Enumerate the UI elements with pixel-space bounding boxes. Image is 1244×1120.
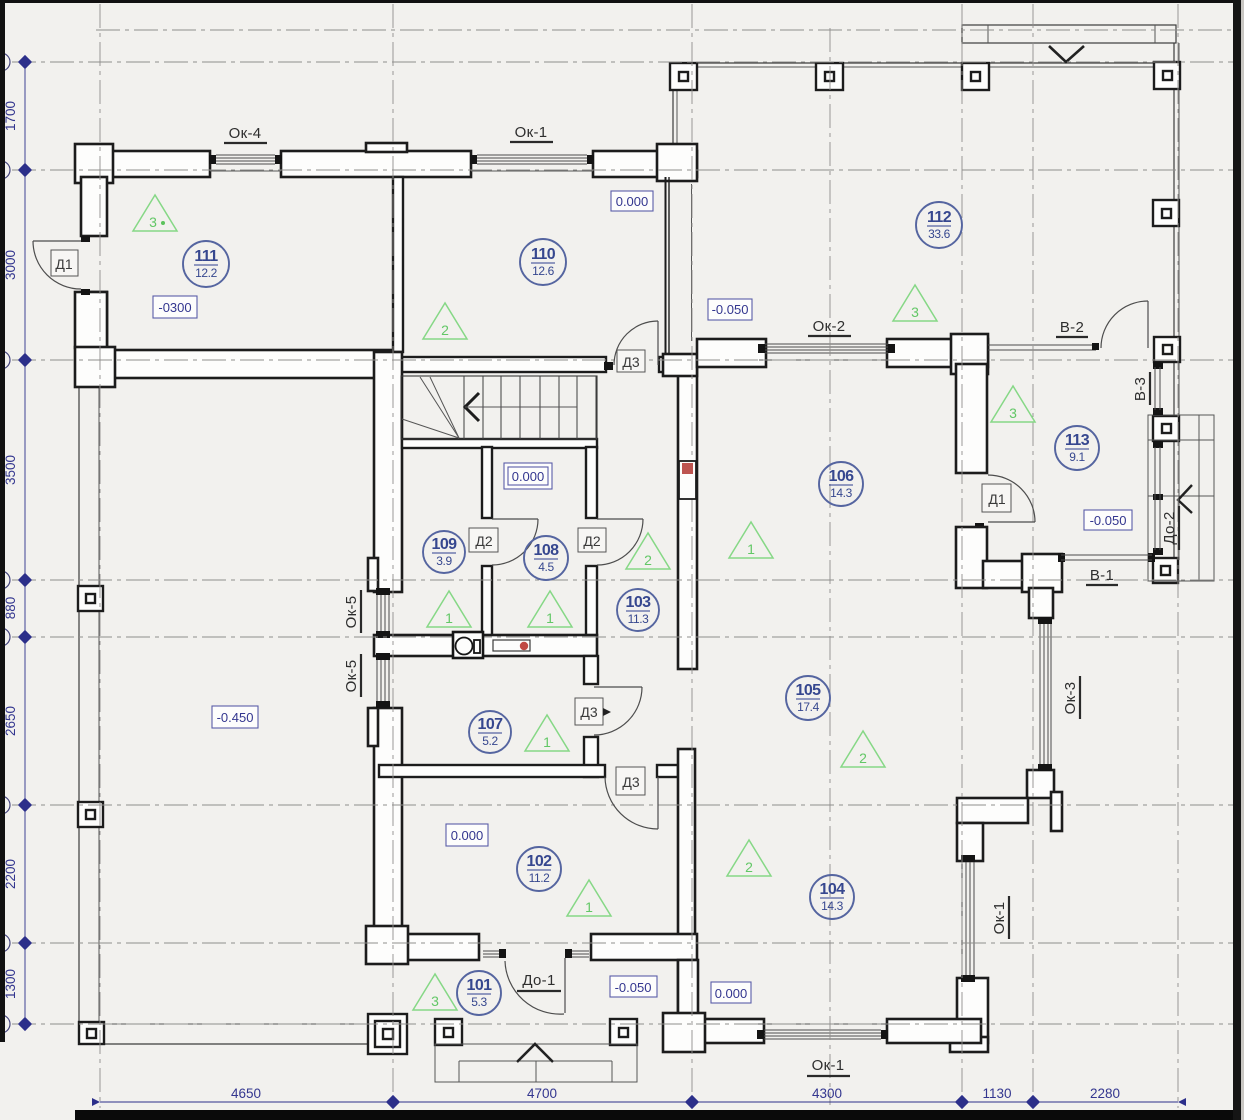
svg-text:4650: 4650 [231,1086,261,1101]
svg-text:До-1: До-1 [522,972,555,989]
svg-text:До-2: До-2 [1161,511,1178,544]
svg-text:109: 109 [432,536,458,553]
svg-text:Д3: Д3 [580,704,597,720]
svg-text:9.1: 9.1 [1069,450,1085,464]
svg-text:Ок-3: Ок-3 [1062,682,1079,715]
svg-text:2650: 2650 [3,706,18,736]
svg-text:33.6: 33.6 [928,227,950,241]
svg-text:103: 103 [626,594,652,611]
svg-text:880: 880 [3,597,18,620]
svg-text:5.3: 5.3 [471,995,487,1009]
svg-text:3: 3 [149,214,157,230]
svg-text:Д3: Д3 [622,774,639,790]
svg-text:Ок-5: Ок-5 [343,596,360,629]
svg-text:4300: 4300 [812,1086,842,1101]
svg-text:2: 2 [441,322,449,338]
svg-text:112: 112 [927,209,952,226]
svg-text:1700: 1700 [3,101,18,131]
svg-text:1300: 1300 [3,969,18,999]
svg-text:3500: 3500 [3,455,18,485]
svg-text:3: 3 [1009,405,1017,421]
svg-text:-0300: -0300 [158,300,191,315]
svg-text:0.000: 0.000 [715,986,748,1001]
svg-text:В-1: В-1 [1090,567,1114,584]
svg-text:-0.050: -0.050 [1090,513,1127,528]
svg-text:102: 102 [527,853,553,870]
svg-text:107: 107 [478,716,504,733]
svg-text:Ок-2: Ок-2 [813,318,846,335]
svg-text:11.3: 11.3 [628,612,650,626]
svg-text:1: 1 [445,610,453,626]
svg-text:17.4: 17.4 [797,700,819,714]
svg-text:Д2: Д2 [475,533,492,549]
svg-text:110: 110 [531,246,556,263]
svg-text:2: 2 [859,750,867,766]
svg-text:4.5: 4.5 [538,560,554,574]
svg-text:12.2: 12.2 [195,266,217,280]
svg-text:Д1: Д1 [55,256,72,272]
svg-text:1: 1 [747,541,755,557]
svg-text:105: 105 [796,682,822,699]
svg-text:108: 108 [534,542,560,559]
svg-text:106: 106 [829,468,855,485]
svg-text:104: 104 [820,881,846,898]
svg-text:3.9: 3.9 [436,554,452,568]
svg-text:0.000: 0.000 [451,828,484,843]
svg-text:-0.050: -0.050 [712,302,749,317]
svg-text:0.000: 0.000 [512,469,545,484]
svg-text:Ок-1: Ок-1 [991,902,1008,935]
svg-text:1130: 1130 [982,1086,1011,1101]
svg-text:12.6: 12.6 [532,264,554,278]
svg-text:Ок-1: Ок-1 [812,1057,845,1074]
svg-text:4700: 4700 [527,1086,557,1101]
svg-text:2200: 2200 [3,859,18,889]
svg-text:Ок-1: Ок-1 [515,124,548,141]
svg-text:1: 1 [543,734,551,750]
svg-text:5.2: 5.2 [482,734,498,748]
svg-text:0.000: 0.000 [616,194,649,209]
svg-text:В-2: В-2 [1060,319,1084,336]
svg-text:Д2: Д2 [583,533,600,549]
svg-text:11.2: 11.2 [529,871,551,885]
svg-text:Ок-4: Ок-4 [229,125,262,142]
svg-text:2280: 2280 [1090,1086,1120,1101]
svg-text:1: 1 [585,899,593,915]
svg-text:-0.050: -0.050 [615,980,652,995]
svg-text:14.3: 14.3 [821,899,843,913]
svg-text:Д3: Д3 [622,354,639,370]
svg-text:2: 2 [745,859,753,875]
svg-text:2: 2 [644,552,652,568]
svg-text:113: 113 [1065,432,1090,449]
svg-text:14.3: 14.3 [830,486,852,500]
svg-text:3: 3 [911,304,919,320]
svg-text:В-3: В-3 [1132,377,1149,401]
svg-text:Ок-5: Ок-5 [343,660,360,693]
svg-text:101: 101 [467,977,493,994]
svg-text:-0.450: -0.450 [217,710,254,725]
svg-text:111: 111 [194,248,218,265]
svg-text:1: 1 [546,610,554,626]
svg-text:Д1: Д1 [988,491,1005,507]
svg-text:3000: 3000 [3,250,18,280]
svg-text:3: 3 [431,993,439,1009]
